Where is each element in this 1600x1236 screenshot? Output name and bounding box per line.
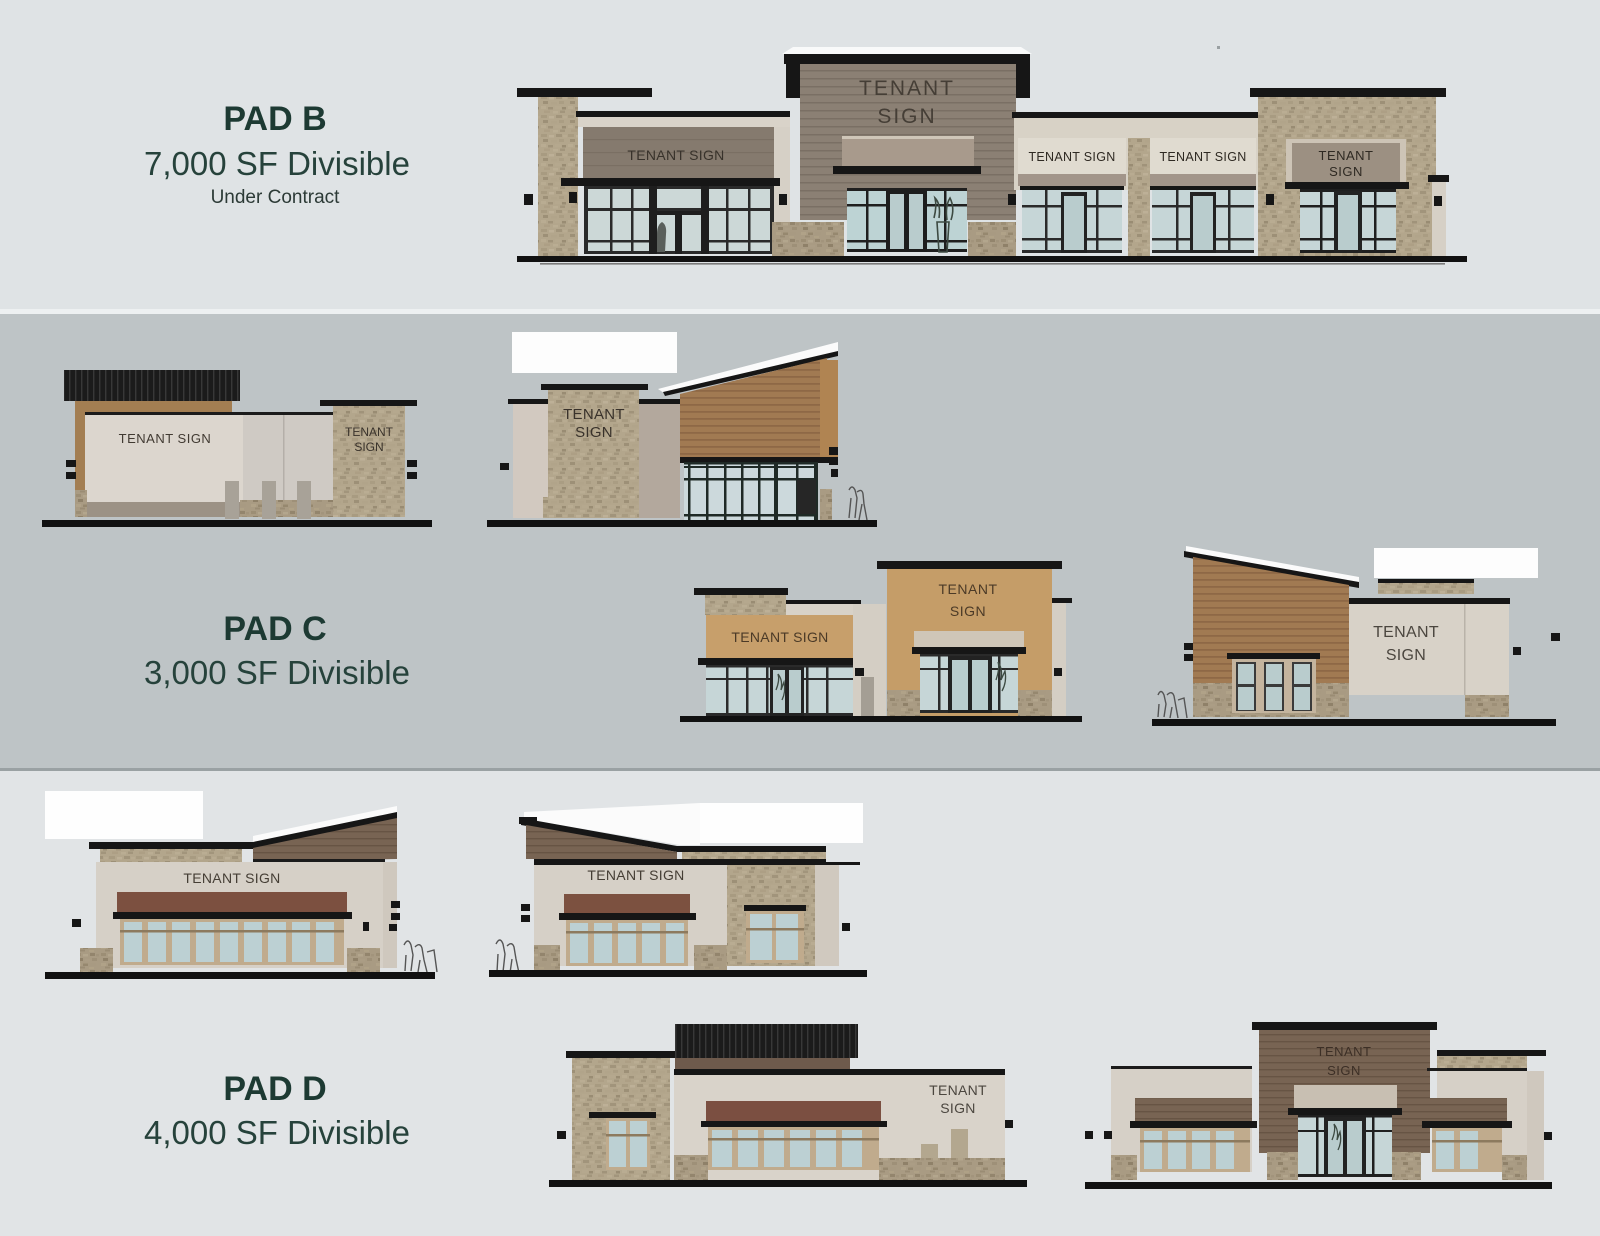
svg-text:TENANT: TENANT bbox=[1373, 624, 1439, 641]
svg-text:TENANT SIGN: TENANT SIGN bbox=[119, 431, 212, 446]
svg-text:TENANT: TENANT bbox=[563, 406, 625, 423]
svg-text:PAD C: PAD C bbox=[223, 610, 326, 648]
svg-text:TENANT SIGN: TENANT SIGN bbox=[1028, 150, 1115, 164]
svg-text:SIGN: SIGN bbox=[575, 424, 613, 441]
svg-text:SIGN: SIGN bbox=[877, 105, 936, 128]
svg-text:PAD D: PAD D bbox=[223, 1070, 326, 1108]
svg-text:TENANT: TENANT bbox=[345, 425, 394, 439]
svg-text:SIGN: SIGN bbox=[1327, 1063, 1361, 1078]
svg-text:TENANT SIGN: TENANT SIGN bbox=[627, 147, 724, 163]
svg-text:TENANT SIGN: TENANT SIGN bbox=[587, 867, 684, 883]
svg-text:SIGN: SIGN bbox=[1329, 164, 1363, 179]
svg-text:Under Contract: Under Contract bbox=[211, 187, 341, 208]
svg-text:TENANT SIGN: TENANT SIGN bbox=[731, 629, 828, 645]
svg-text:TENANT: TENANT bbox=[859, 77, 955, 100]
svg-text:SIGN: SIGN bbox=[940, 1100, 975, 1116]
svg-text:PAD B: PAD B bbox=[223, 100, 326, 138]
svg-text:3,000 SF Divisible: 3,000 SF Divisible bbox=[144, 654, 410, 691]
svg-text:SIGN: SIGN bbox=[354, 440, 383, 454]
svg-text:7,000 SF Divisible: 7,000 SF Divisible bbox=[144, 145, 410, 182]
svg-text:TENANT SIGN: TENANT SIGN bbox=[183, 870, 280, 886]
svg-text:SIGN: SIGN bbox=[1386, 647, 1426, 664]
svg-text:TENANT: TENANT bbox=[929, 1082, 987, 1098]
svg-text:TENANT SIGN: TENANT SIGN bbox=[1159, 150, 1246, 164]
svg-text:SIGN: SIGN bbox=[950, 603, 986, 619]
svg-text:TENANT: TENANT bbox=[1317, 1044, 1372, 1059]
svg-text:4,000 SF Divisible: 4,000 SF Divisible bbox=[144, 1114, 410, 1151]
svg-text:TENANT: TENANT bbox=[939, 581, 998, 597]
svg-text:TENANT: TENANT bbox=[1319, 148, 1374, 163]
